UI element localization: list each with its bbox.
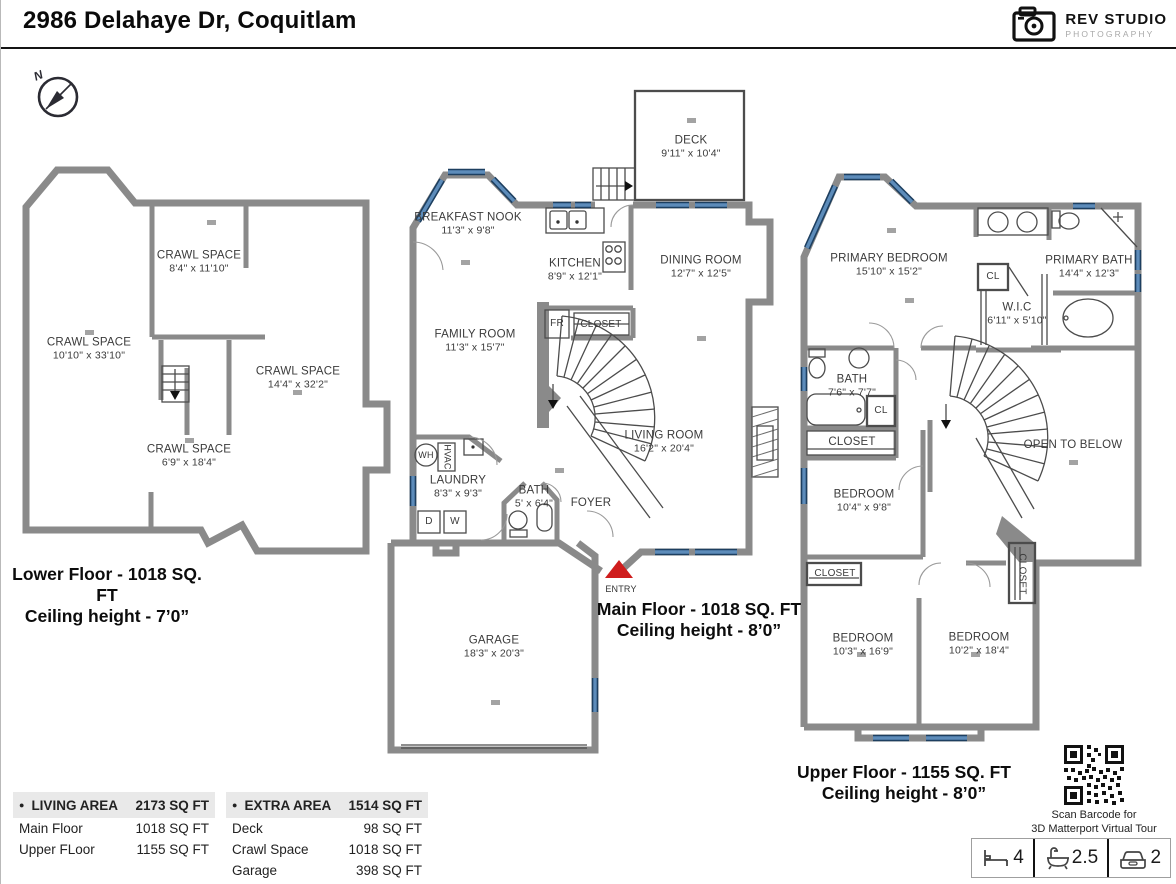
room-label-wic: W.I.C6'11" x 5'10" (987, 302, 1046, 327)
room-label-primary-bath: PRIMARY BATH14'4" x 12'3" (1045, 255, 1132, 280)
table-row: Garage398 SQ FT (226, 860, 428, 881)
room-label-laundry: LAUNDRY8'3" x 9'3" (430, 475, 486, 500)
room-label-crawl-space-4: CRAWL SPACE6'9" x 18'4" (147, 444, 231, 469)
room-label-foyer: FOYER (571, 497, 612, 510)
floor-plan-canvas: N (1, 0, 1176, 884)
room-label-crawl-space-2: CRAWL SPACE10'10" x 33'10" (47, 337, 131, 362)
table-row: Deck98 SQ FT (226, 818, 428, 839)
bullet-icon: ● (232, 800, 237, 810)
room-label-entry: ENTRY (605, 583, 636, 596)
room-label-hvac: HVAC (441, 444, 454, 469)
room-label-living-room: LIVING ROOM16'2" x 20'4" (625, 430, 704, 455)
table-row: Crawl Space1018 SQ FT (226, 839, 428, 860)
room-label-upper-bath: BATH7'6" x 7'7" (828, 374, 876, 399)
room-label-dryer: D (425, 516, 432, 529)
beds-stat: 4 (972, 839, 1033, 877)
room-label-water-heater: WH (418, 449, 433, 462)
qr-caption: Scan Barcode for3D Matterport Virtual To… (1004, 808, 1176, 836)
room-label-crawl-space-1: CRAWL SPACE8'4" x 11'10" (157, 250, 241, 275)
living-area-table: ● LIVING AREA 2173 SQ FT Main Floor1018 … (13, 792, 215, 860)
room-label-washer: W (450, 516, 460, 529)
bed-icon (981, 846, 1009, 870)
room-label-deck: DECK9'11" x 10'4" (661, 135, 720, 160)
room-label-bedroom-2: BEDROOM10'3" x 16'9" (833, 633, 894, 658)
extra-area-header: ● EXTRA AREA 1514 SQ FT (226, 792, 428, 818)
fireplace (752, 407, 778, 477)
room-label-kitchen: KITCHEN8'9" x 12'1" (548, 258, 602, 283)
room-label-cl-wic: CL (986, 271, 999, 284)
table-row: Upper FLoor1155 SQ FT (13, 839, 215, 860)
car-icon (1118, 846, 1148, 870)
upper-floor-caption: Upper Floor - 1155 SQ. FTCeiling height … (764, 762, 1044, 804)
extra-area-table: ● EXTRA AREA 1514 SQ FT Deck98 SQ FT Cra… (226, 792, 428, 881)
compass-north-label: N (32, 67, 46, 83)
bath-icon (1044, 845, 1072, 871)
garage-stat: 2 (1107, 839, 1170, 877)
room-label-main-bath: BATH5' x 6'4" (515, 485, 553, 510)
floor-plan-page: 2986 Delahaye Dr, Coquitlam REV STUDIO P… (0, 0, 1176, 884)
living-area-header: ● LIVING AREA 2173 SQ FT (13, 792, 215, 818)
room-label-crawl-space-3: CRAWL SPACE14'4" x 32'2" (256, 366, 340, 391)
room-label-closet-1: CLOSET (828, 436, 875, 449)
room-label-primary-bedroom: PRIMARY BEDROOM15'10" x 15'2" (830, 253, 948, 278)
main-floor-plan (391, 91, 778, 750)
lower-floor-caption: Lower Floor - 1018 SQ. FTCeiling height … (7, 564, 207, 627)
room-label-closet-3: CLOSET (1015, 553, 1028, 594)
room-label-cl-bath: CL (874, 405, 887, 418)
main-floor-caption: Main Floor - 1018 SQ. FTCeiling height -… (559, 599, 839, 641)
room-label-bedroom-3: BEDROOM10'2" x 18'4" (949, 632, 1010, 657)
curved-staircase-upper (950, 336, 1048, 481)
room-label-breakfast-nook: BREAKFAST NOOK11'3" x 9'8" (414, 212, 521, 237)
compass-icon: N (32, 67, 77, 116)
room-label-family-room: FAMILY ROOM11'3" x 15'7" (434, 329, 515, 354)
table-row: Main Floor1018 SQ FT (13, 818, 215, 839)
room-label-open-to-below: OPEN TO BELOW (1024, 439, 1123, 452)
room-label-closet-2: CLOSET (814, 568, 855, 581)
room-label-dining-room: DINING ROOM12'7" x 12'5" (660, 255, 741, 280)
bullet-icon: ● (19, 800, 24, 810)
qr-code (1064, 745, 1124, 810)
property-stats-bar: 4 2.5 2 (971, 838, 1171, 878)
room-label-bedroom-1: BEDROOM10'4" x 9'8" (834, 489, 895, 514)
room-label-garage: GARAGE18'3" x 20'3" (464, 635, 524, 660)
room-label-fridge: FR (550, 318, 564, 331)
baths-stat: 2.5 (1033, 839, 1107, 877)
room-label-main-closet: CLOSET (580, 319, 621, 332)
